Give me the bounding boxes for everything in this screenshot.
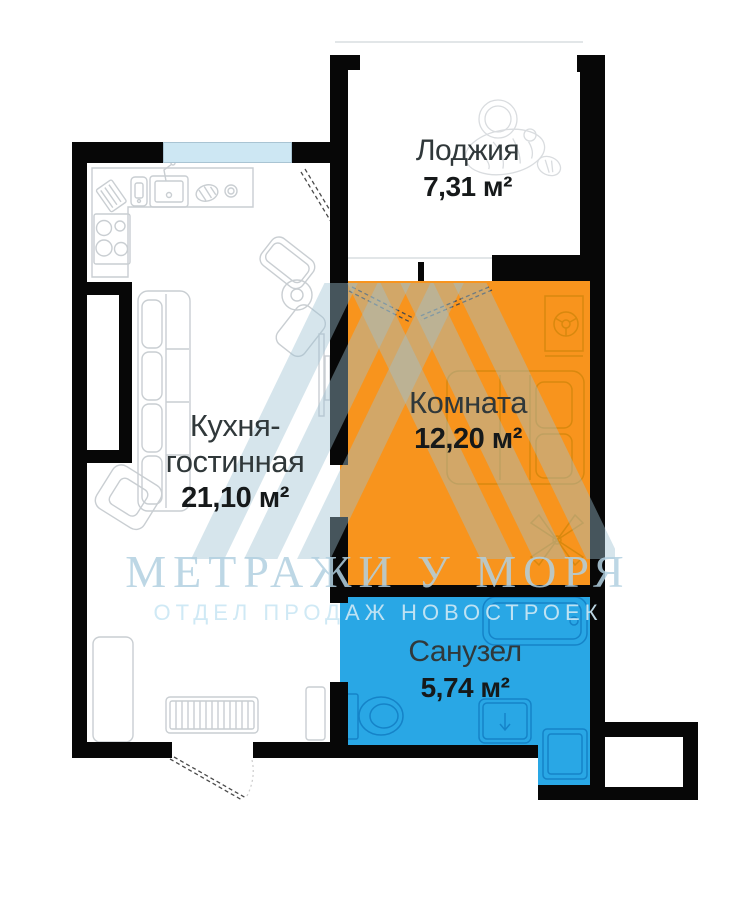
- entrance-door-swing: [174, 757, 246, 798]
- wall-right: [590, 255, 605, 800]
- room-label-kitchen: Кухня- гостинная 21,10 м²: [115, 408, 355, 516]
- balcony-door-swing-left: [352, 287, 413, 318]
- plant-star: [531, 515, 583, 565]
- sliding-door: [319, 334, 330, 416]
- floor-plan: МЕТРАЖИ У МОРЯ ОТДЕЛ ПРОДАЖ НОВОСТРОЕК Л…: [0, 0, 755, 906]
- room-area: 5,74 м²: [350, 670, 580, 706]
- wall-room-bath: [330, 585, 605, 597]
- entrance-door-arc: [247, 760, 253, 796]
- room-name: Санузел: [350, 634, 580, 670]
- radiator: [166, 697, 258, 733]
- wall-loggia-left: [330, 55, 348, 281]
- ring-item: [225, 185, 237, 197]
- room-name: гостинная: [115, 444, 355, 480]
- wall-left: [72, 142, 87, 758]
- shower-tray: [543, 729, 587, 779]
- wall-bath-ext-bottom: [538, 785, 605, 800]
- room-area: 21,10 м²: [115, 480, 355, 516]
- wall-bottom-a: [72, 742, 172, 758]
- wall-loggia-bottom: [492, 255, 605, 281]
- desk-chair: [256, 233, 329, 360]
- room-name: Кухня-: [115, 408, 355, 444]
- room-label-bedroom: Комната 12,20 м²: [353, 385, 583, 457]
- wall-loggia-top-left-notch: [344, 55, 360, 70]
- stove: [94, 214, 130, 264]
- balcony-door-swing-right: [418, 287, 489, 317]
- hall-cabinet: [306, 687, 325, 740]
- toaster: [131, 177, 147, 206]
- cutting-board: [96, 179, 127, 212]
- fish-plate: [194, 182, 219, 203]
- room-area: 12,20 м²: [353, 421, 583, 457]
- wall-bath-bottom: [330, 745, 538, 758]
- wall-br-bottom: [605, 787, 698, 800]
- wardrobe: [545, 296, 583, 356]
- room-label-loggia: Лоджия 7,31 м²: [355, 133, 580, 205]
- room-area: 7,31 м²: [355, 169, 580, 205]
- room-label-bathroom: Санузел 5,74 м²: [350, 634, 580, 706]
- room-name: Комната: [353, 385, 583, 421]
- room-name: Лоджия: [355, 133, 580, 169]
- wall-loggia-right: [580, 55, 605, 262]
- kitchen-window: [163, 142, 292, 163]
- wall-balcony-tick: [418, 262, 424, 281]
- fridge: [93, 637, 133, 742]
